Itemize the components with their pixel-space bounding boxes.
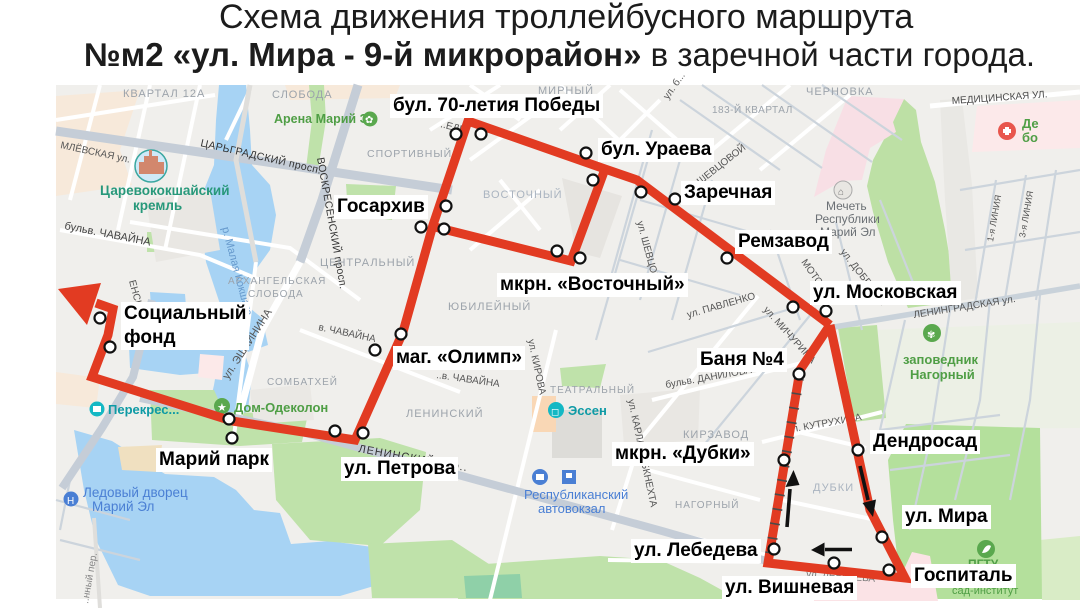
svg-text:СПОРТИВНЫЙ: СПОРТИВНЫЙ (367, 147, 452, 160)
svg-text:Дом-Одеколон: Дом-Одеколон (234, 400, 328, 415)
svg-text:КИРЗАВОД: КИРЗАВОД (683, 429, 749, 441)
svg-text:Марий Эл: Марий Эл (92, 499, 154, 514)
svg-text:ТЕАТРАЛЬНЫЙ: ТЕАТРАЛЬНЫЙ (550, 383, 635, 396)
svg-text:Нагорный: Нагорный (910, 367, 975, 382)
svg-text:✿: ✿ (365, 115, 373, 126)
svg-text:Н: Н (67, 496, 74, 507)
svg-text:КВАРТАЛ 12А: КВАРТАЛ 12А (123, 88, 205, 100)
svg-text:СЛОБОДА: СЛОБОДА (248, 289, 304, 300)
svg-text:бо: бо (1022, 130, 1038, 145)
svg-text:СЛОБОДА: СЛОБОДА (272, 89, 333, 101)
svg-text:Мечеть: Мечеть (826, 199, 867, 213)
svg-text:Де: Де (1022, 116, 1039, 131)
svg-text:◻: ◻ (551, 407, 559, 418)
svg-text:автовокзал: автовокзал (538, 501, 606, 516)
svg-text:ДУБКИ: ДУБКИ (813, 482, 854, 494)
svg-text:ЦЕНТРАЛЬНЫЙ: ЦЕНТРАЛЬНЫЙ (320, 256, 415, 269)
svg-text:ЧЕРНОВКА: ЧЕРНОВКА (806, 86, 874, 98)
svg-text:Царевококшайский: Царевококшайский (100, 183, 230, 198)
svg-text:НАГОРНЫЙ: НАГОРНЫЙ (675, 498, 739, 511)
svg-text:ЮБИЛЕЙНЫЙ: ЮБИЛЕЙНЫЙ (448, 300, 531, 313)
svg-text:Арена Марий Эл: Арена Марий Эл (274, 112, 376, 126)
svg-text:Эссен: Эссен (568, 403, 607, 418)
svg-text:ВОСТОЧНЫЙ: ВОСТОЧНЫЙ (483, 188, 563, 201)
svg-text:Республики: Республики (815, 212, 880, 226)
svg-text:⌂: ⌂ (838, 187, 844, 198)
svg-text:СОМБАТХЕЙ: СОМБАТХЕЙ (267, 375, 338, 388)
svg-text:Республиканский: Республиканский (524, 487, 628, 502)
svg-text:ЛЕНИНСКИЙ: ЛЕНИНСКИЙ (406, 407, 484, 420)
svg-text:АРХАНГЕЛЬСКАЯ: АРХАНГЕЛЬСКАЯ (228, 276, 326, 287)
svg-text:кремль: кремль (133, 198, 182, 213)
svg-text:заповедник: заповедник (903, 352, 978, 367)
svg-text:✾: ✾ (927, 330, 935, 341)
svg-text:183-Й КВАРТАЛ: 183-Й КВАРТАЛ (712, 103, 793, 116)
svg-text:Ледовый дворец: Ледовый дворец (83, 485, 188, 500)
